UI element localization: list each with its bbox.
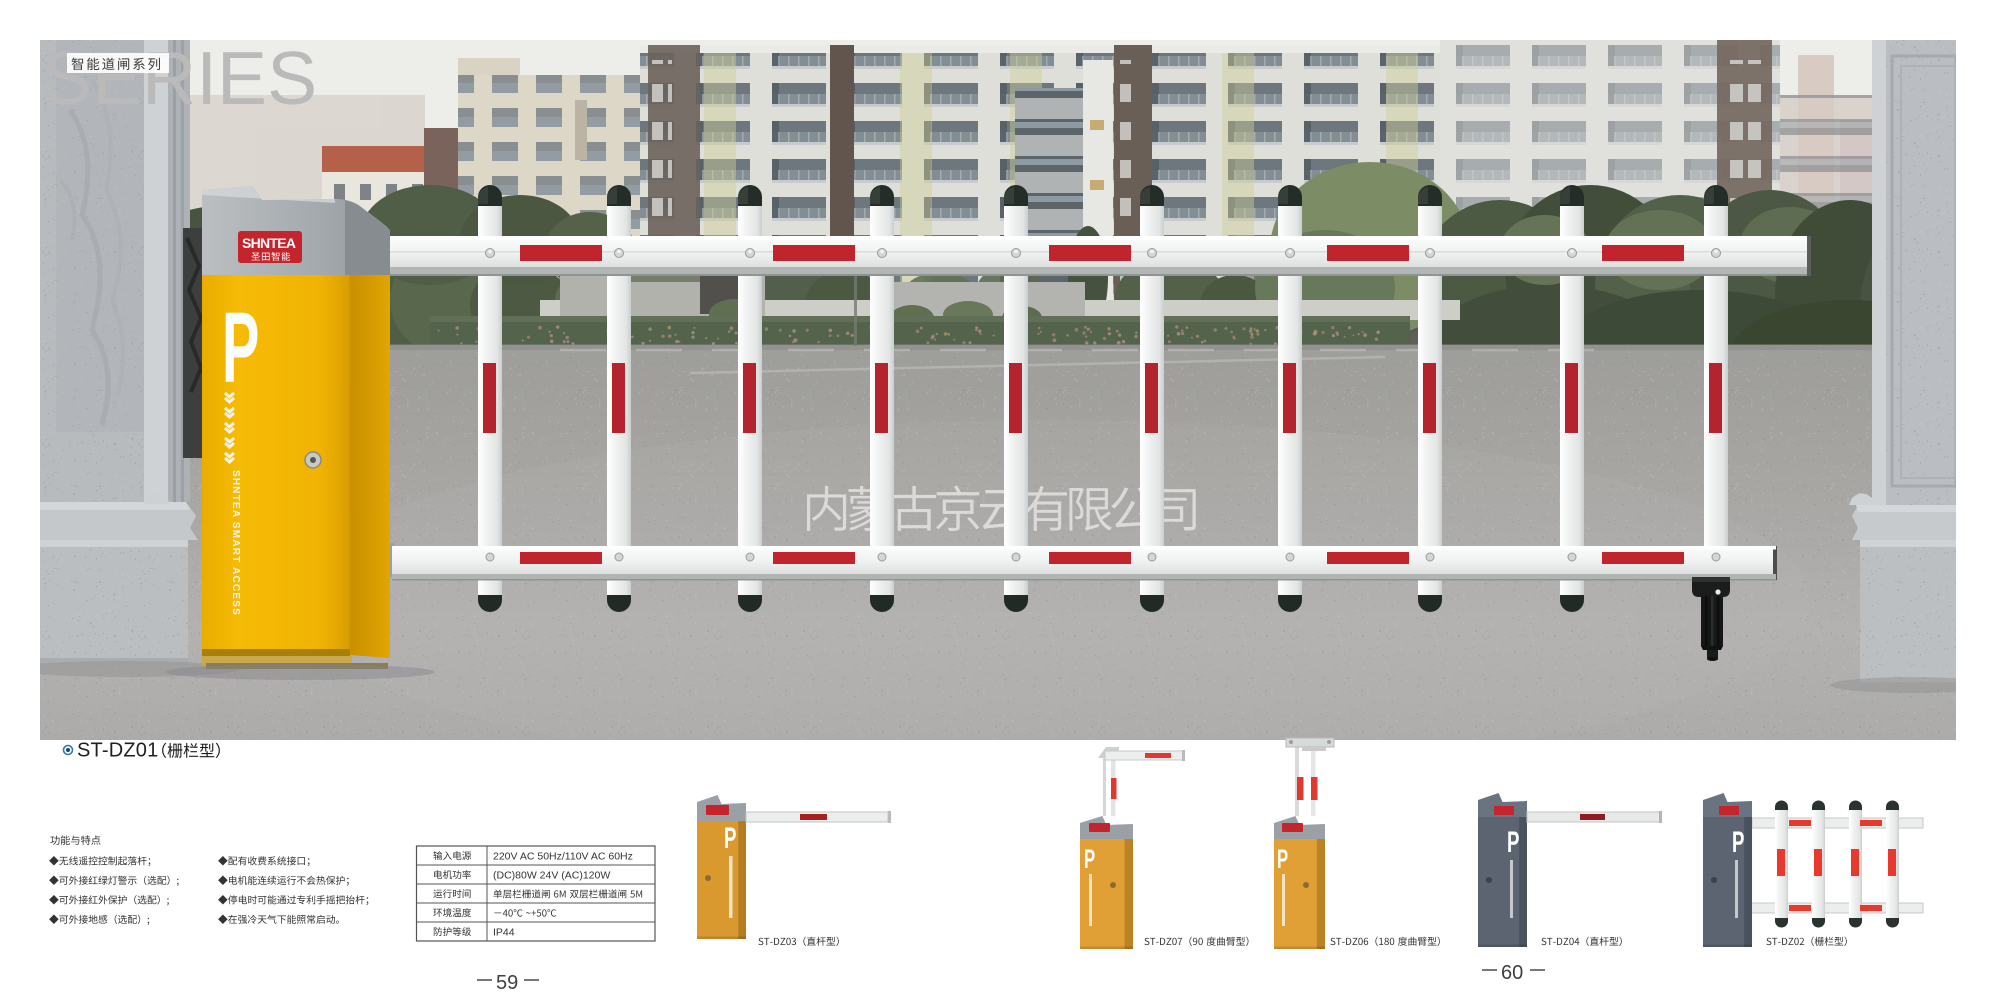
svg-text:59: 59 [496,972,518,994]
svg-text:SERIES: SERIES [42,36,317,120]
svg-text:P: P [1732,826,1744,860]
svg-text:P: P [724,822,736,856]
svg-text:P: P [222,293,259,404]
svg-text:220V AC 50Hz/110V AC 60Hz: 220V AC 50Hz/110V AC 60Hz [493,851,633,863]
svg-text:SHNTEA: SHNTEA [242,235,296,251]
svg-text:P: P [1277,844,1288,874]
svg-text:SHNTEA SMART ACCESS: SHNTEA SMART ACCESS [230,470,241,616]
svg-text:(DC)80W 24V (AC)120W: (DC)80W 24V (AC)120W [493,870,610,882]
svg-text:IP44: IP44 [493,927,515,939]
svg-text:P: P [1507,826,1519,860]
svg-text:ST-DZ01: ST-DZ01 [77,740,158,762]
svg-text:60: 60 [1501,962,1523,984]
svg-text:P: P [1084,844,1095,874]
